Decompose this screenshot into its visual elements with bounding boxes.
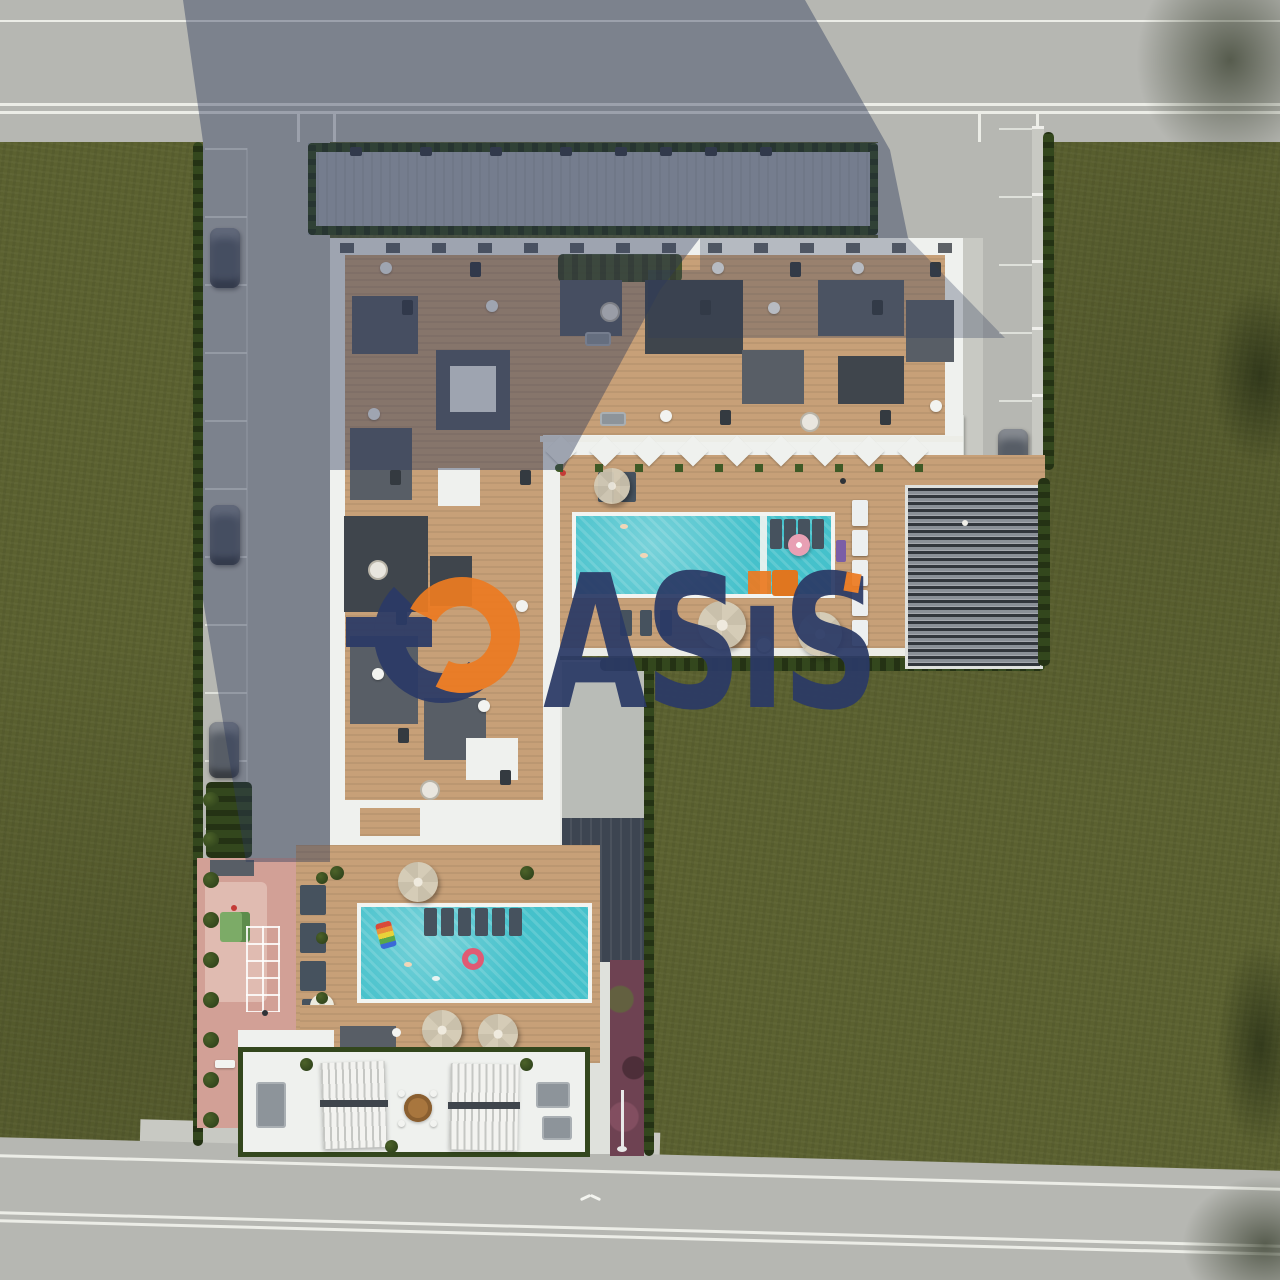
terrace-sofa (600, 412, 626, 426)
terrace-furniture (930, 262, 941, 277)
watermark-letter: S (645, 551, 739, 736)
tree (203, 992, 219, 1008)
roof-patch (742, 350, 804, 404)
garage-hedge-bottom (308, 226, 878, 235)
balcony-plants (555, 464, 955, 472)
terrace-furniture (660, 410, 672, 422)
lounge-sofa (256, 1082, 286, 1128)
facade-window-slots (340, 243, 956, 253)
bush (316, 872, 328, 884)
awning-beam (320, 1100, 388, 1107)
tree-shadow (1200, 900, 1280, 1190)
flower-bed (610, 960, 644, 1156)
ring-float (462, 948, 484, 970)
curb-stub (978, 112, 981, 142)
bush (300, 1058, 313, 1071)
pergola-hedge (1038, 478, 1050, 666)
round-dining-table (404, 1094, 432, 1122)
tree (203, 832, 219, 848)
top-road (0, 0, 1280, 142)
bush (316, 992, 328, 1004)
terrace-furniture (880, 410, 891, 425)
end-terrace-deck (360, 808, 420, 836)
in-pool-lounger (424, 908, 437, 936)
tree (203, 952, 219, 968)
terrace-furniture (720, 410, 731, 425)
bird-icon (580, 1192, 602, 1204)
garage-hedge-top (308, 143, 878, 152)
swimmer (432, 976, 440, 981)
tree (203, 1032, 219, 1048)
in-pool-lounger (441, 908, 454, 936)
louvered-pergola (905, 485, 1043, 669)
in-pool-lounger (492, 908, 505, 936)
parked-car (210, 505, 240, 565)
deck-lounger (300, 961, 326, 991)
skylight (450, 366, 496, 412)
terrace-furniture (470, 262, 481, 277)
swimmer (404, 962, 412, 967)
curb-stub (297, 112, 300, 142)
right-parking-bays (999, 128, 1033, 466)
lounge-sofa (536, 1082, 570, 1108)
roof-patch (838, 356, 904, 404)
terrace-furniture (520, 470, 531, 485)
roof-vent (560, 147, 572, 156)
dining-chair (430, 1090, 437, 1097)
umbrella (594, 468, 630, 504)
terrace-furniture (486, 300, 498, 312)
terrace-furniture (368, 408, 380, 420)
deck-lounger (300, 885, 326, 915)
watermark-letters: A S ı S (543, 551, 877, 736)
terrace-furniture (402, 300, 413, 315)
tree (203, 912, 219, 928)
bush (520, 1058, 533, 1071)
oasis-watermark: A S ı S (348, 551, 908, 731)
roof-vent (705, 147, 717, 156)
rooftop-planter (558, 254, 682, 282)
roof-patch (645, 280, 743, 354)
watermark-letter: S (782, 551, 876, 736)
bush (520, 866, 534, 880)
parked-car (209, 722, 239, 778)
lounge-sofa (542, 1116, 572, 1140)
white-lounger (852, 500, 868, 526)
terrace-table (600, 302, 620, 322)
terrace-furniture (872, 300, 883, 315)
road-marking (0, 103, 1280, 106)
tree (203, 872, 219, 888)
terrace-furniture (390, 470, 401, 485)
garage-hedge-left (308, 143, 316, 235)
dining-chair (430, 1120, 437, 1127)
dining-chair (398, 1090, 405, 1097)
roof-vent (660, 147, 672, 156)
roof-vent (490, 147, 502, 156)
garden-statue (392, 1028, 401, 1037)
in-pool-lounger (475, 908, 488, 936)
tree-shadow (1150, 1150, 1280, 1280)
parked-car (210, 228, 240, 288)
tree-shadow (1100, 0, 1280, 210)
bush (316, 932, 328, 944)
roof-patch (818, 280, 904, 336)
road-marking (0, 1210, 1280, 1249)
umbrella (398, 862, 438, 902)
watermark-letter: A (543, 551, 645, 736)
garage-hedge-right (870, 143, 878, 235)
dining-chair (398, 1120, 405, 1127)
skylight (438, 468, 480, 506)
terrace-furniture (852, 262, 864, 274)
terrace-furniture (768, 302, 780, 314)
logo-i-dot (748, 571, 771, 594)
bottom-road (0, 1136, 1280, 1280)
roof-vent (420, 147, 432, 156)
roof-patch (906, 300, 954, 362)
road-marking (0, 1218, 1280, 1257)
right-access-road (878, 142, 983, 238)
roof-vent (760, 147, 772, 156)
bench (215, 1060, 235, 1068)
terrace-furniture (500, 770, 511, 785)
person-dot (262, 1010, 268, 1016)
hopscotch-markings (246, 926, 280, 1012)
terrace-sofa (585, 332, 611, 346)
lamppost-base (617, 1146, 627, 1152)
in-pool-lounger (509, 908, 522, 936)
road-marking (0, 20, 1280, 22)
terrace-table (420, 780, 440, 800)
tree (203, 792, 219, 808)
roof-vent (350, 147, 362, 156)
umbrella (478, 1014, 518, 1054)
in-pool-lounger (458, 908, 471, 936)
aerial-site-render: A S ı S (0, 0, 1280, 1280)
bush (330, 866, 344, 880)
umbrella (422, 1010, 462, 1050)
bay-divider-line (246, 148, 248, 860)
tree (203, 1072, 219, 1088)
person-dot (962, 520, 968, 526)
person-dot (231, 905, 237, 911)
roof-vent (615, 147, 627, 156)
deck-sofa (340, 1026, 396, 1048)
road-marking (0, 1153, 1280, 1192)
bush (385, 1140, 398, 1153)
terrace-furniture (700, 300, 711, 315)
road-marking (0, 111, 1280, 114)
right-hedge (1043, 132, 1054, 470)
terrace-furniture (790, 262, 801, 277)
tree-shadow (1190, 250, 1280, 500)
curb-stub (333, 112, 336, 142)
awning-beam (448, 1102, 520, 1109)
swimmer (620, 524, 628, 529)
terrace-furniture (930, 400, 942, 412)
garage-block (308, 143, 878, 235)
lamppost (621, 1090, 624, 1148)
tree (203, 1112, 219, 1128)
roof-patch (350, 428, 412, 500)
terrace-table (800, 412, 820, 432)
person-dot (840, 478, 846, 484)
terrace-furniture (712, 262, 724, 274)
terrace-furniture (380, 262, 392, 274)
